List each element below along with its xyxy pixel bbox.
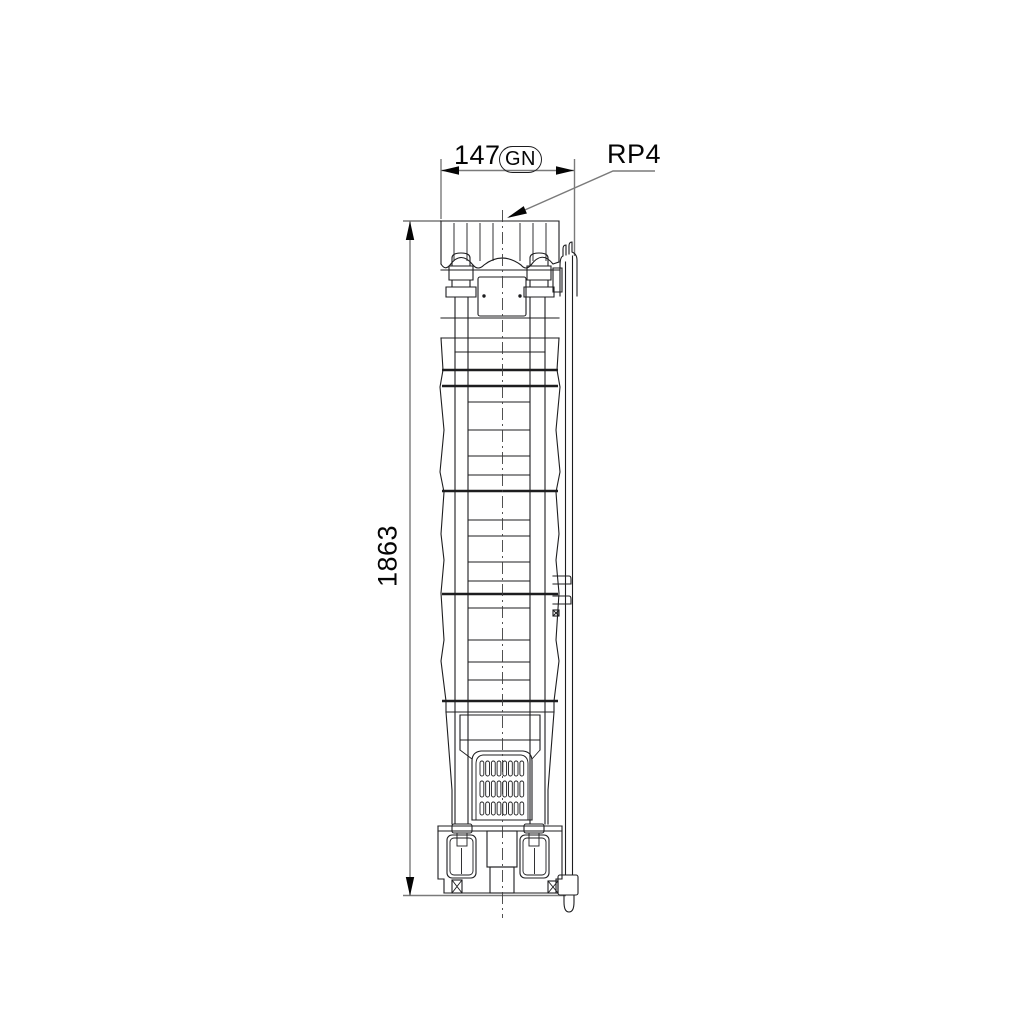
height-dimension-value: 1863 [375,525,402,587]
discharge-flutes [454,223,546,261]
arrow-up-icon [406,221,414,240]
shaft-end [487,831,517,893]
suction-interconnector [446,712,554,759]
cable-clip-upper [553,576,571,584]
nameplate-screw-icon [482,294,485,297]
cable-end-bracket [558,875,578,895]
rp4-leader-line [509,171,655,217]
nameplate-screw-icon [518,294,521,297]
width-dimension-value: 147 [454,142,500,169]
strainer-slots [480,761,524,815]
cable-end-hook [564,895,574,912]
cable-guard-clamps [446,253,554,297]
technical-drawing-canvas: 147 GN RP4 1863 [0,0,1024,1024]
motor-cable [553,242,578,912]
suction-strainer [472,751,532,820]
shell-right-edge [548,338,560,824]
plug-bolt-right [524,824,544,833]
arrow-right-icon [556,166,574,175]
motor-stud-left [452,880,462,893]
leader-arrowhead-icon [507,206,527,218]
cable-clip-lower [553,596,571,604]
arrow-down-icon [406,877,414,896]
gn-badge-label: GN [505,148,536,171]
shell-left-edge [440,338,452,824]
connection-size-label: RP4 [607,141,661,168]
pump-outline [438,210,578,918]
stage-coupling-bands [442,370,558,701]
pump-head [441,270,559,352]
cable-guard-straps [455,297,545,824]
motor-section [438,824,562,893]
gn-badge: GN [499,146,542,173]
plug-bolt-left [452,824,472,833]
stage-lines [468,402,530,680]
discharge-section [441,221,559,268]
